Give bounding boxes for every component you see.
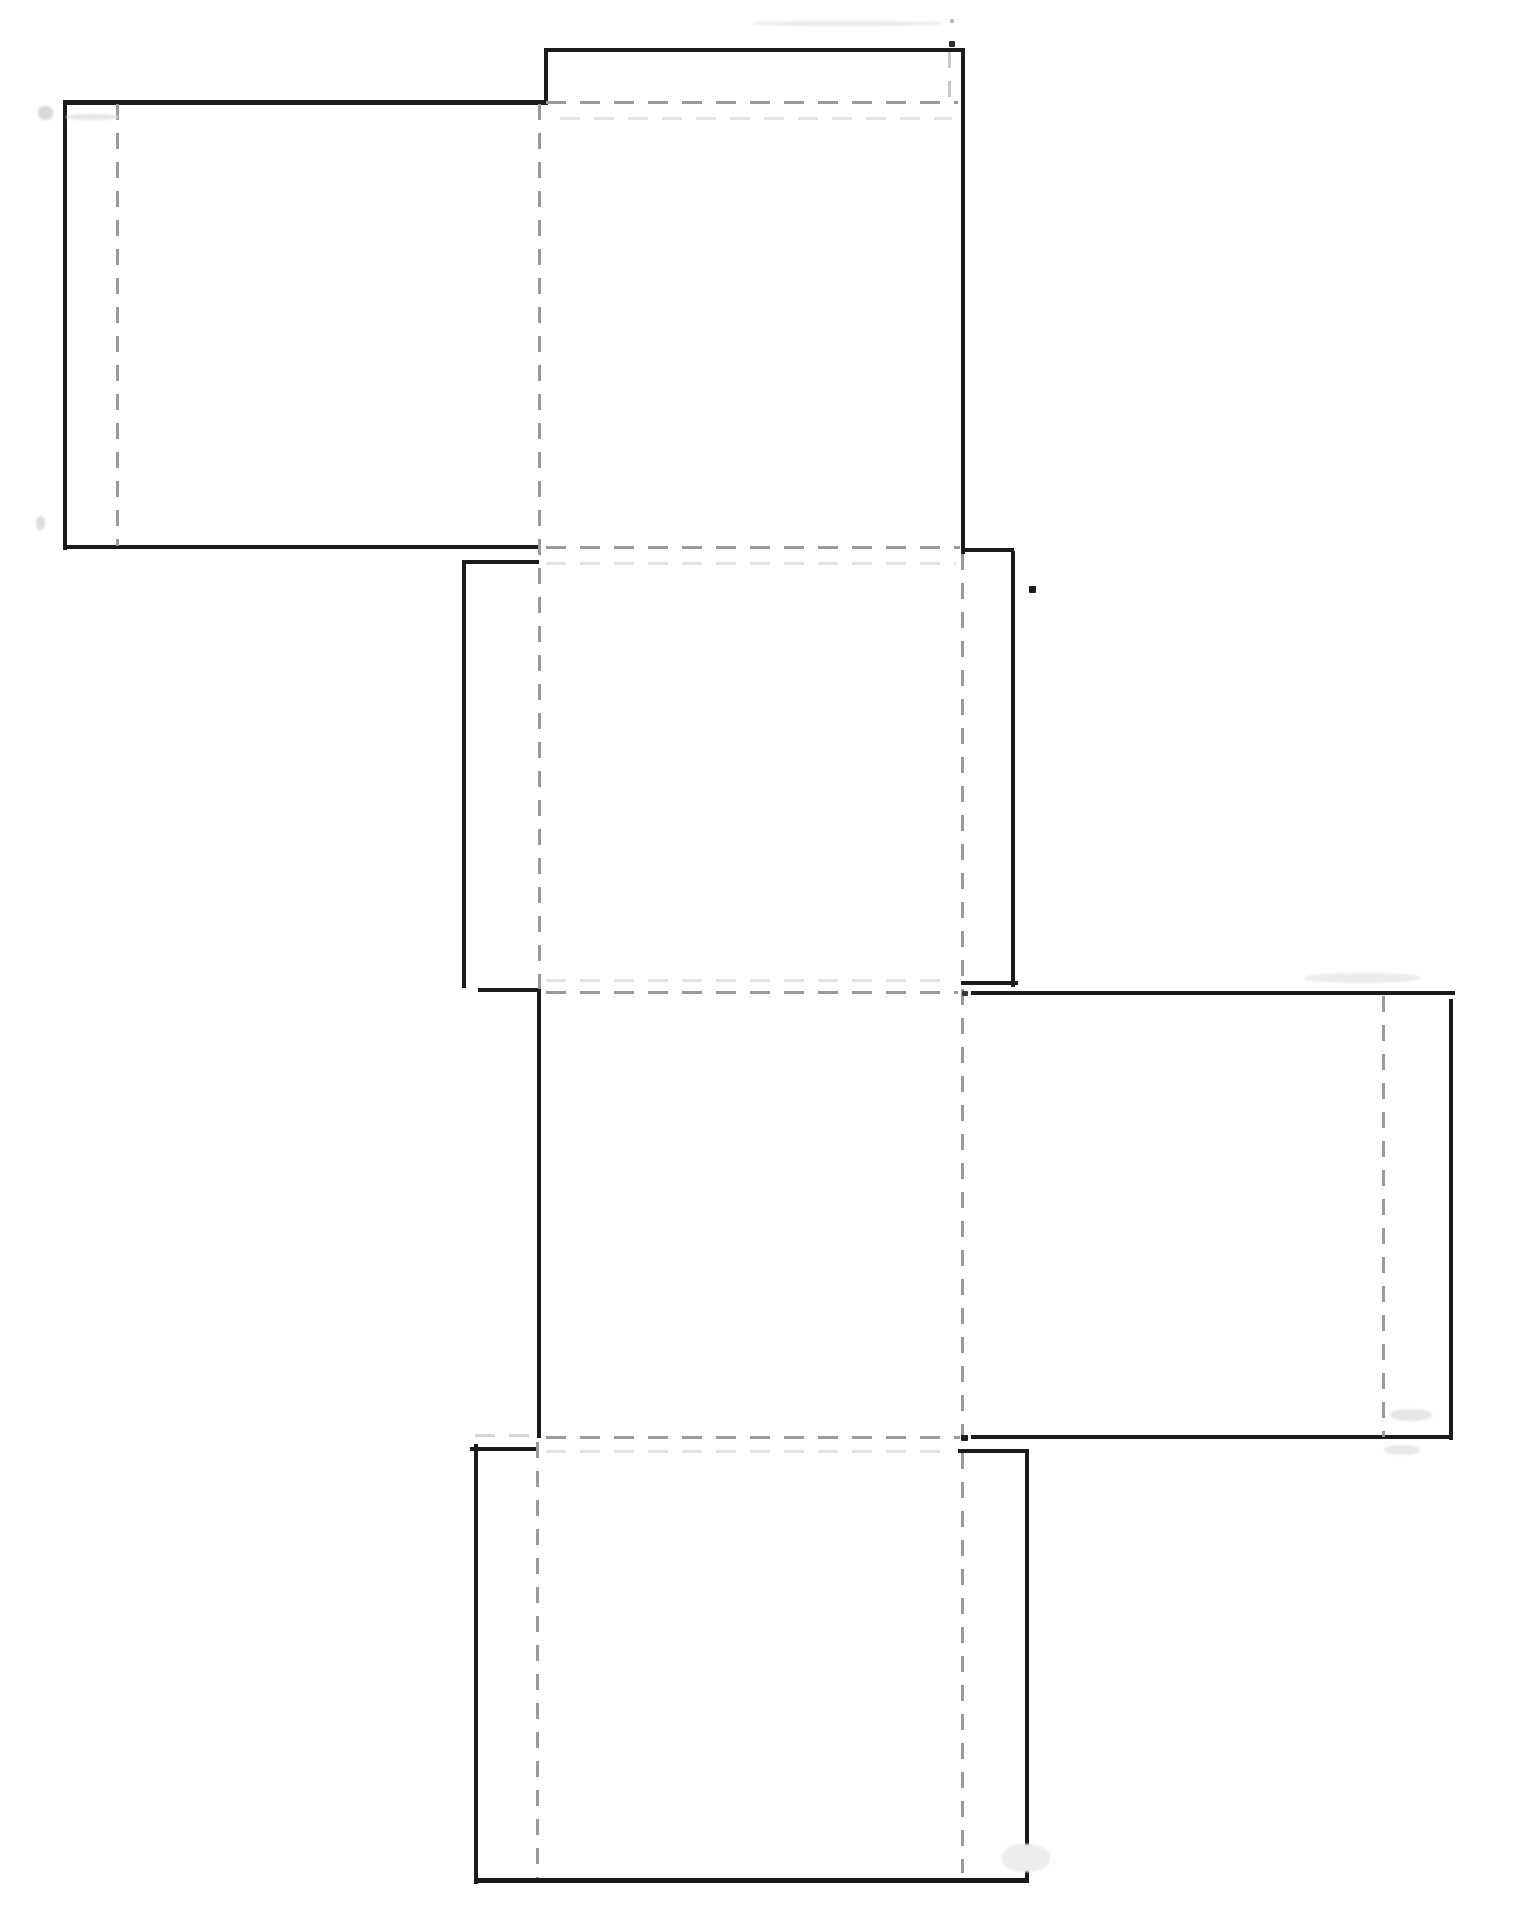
- column-right-fold: [961, 554, 964, 1873]
- middle-square-bottom-fold: [546, 991, 958, 994]
- middle-square-top-right-seg: [961, 548, 1014, 552]
- squiggle-left-middle: [36, 516, 45, 530]
- center-square-bottom-fold-faint: [475, 1434, 535, 1437]
- echo-fold-upper-middle: [546, 562, 956, 565]
- squiggle-left-top: [38, 106, 53, 120]
- smear-top-edge: [752, 21, 942, 26]
- junction-dot-middle-fold: [962, 991, 968, 996]
- echo-fold-bottom: [546, 1450, 952, 1453]
- junction-dot-bottom-fold: [961, 1435, 968, 1441]
- top-square-bottom-fold: [546, 546, 960, 549]
- bottom-square-right-edge: [1025, 1450, 1029, 1882]
- left-flap-left-edge: [63, 100, 67, 550]
- right-flap-bottom-edge: [971, 1435, 1452, 1439]
- center-square-left-edge: [537, 990, 541, 1438]
- left-flap-top-edge: [63, 100, 546, 105]
- stray-dot-right-middle: [1029, 586, 1036, 593]
- top-tab-left-edge: [544, 48, 548, 105]
- left-flap-tab-fold: [116, 104, 119, 546]
- smear-bottom-square: [1002, 1844, 1050, 1872]
- smear-right-flap-below: [1384, 1445, 1420, 1455]
- right-flap-right-edge: [1449, 999, 1453, 1440]
- right-flap-tab-fold: [1382, 996, 1385, 1437]
- column-left-fold-upper: [538, 104, 541, 989]
- right-flap-top-edge: [971, 991, 1455, 995]
- cube-net-lines-layer: [0, 0, 1524, 1915]
- middle-square-right-edge: [1011, 551, 1015, 987]
- middle-square-bottom-left-seg: [478, 988, 541, 992]
- center-square-bottom-fold: [546, 1436, 960, 1439]
- echo-fold-lower-middle: [546, 979, 952, 982]
- middle-square-top-left-seg: [462, 560, 539, 564]
- top-tab-top-edge: [544, 48, 965, 52]
- top-tab-inner-fold-faint: [948, 52, 951, 103]
- smear-right-flap-inner: [1390, 1409, 1432, 1421]
- column-left-fold-lower: [536, 1442, 539, 1878]
- cube-net-diagram: [0, 0, 1524, 1915]
- left-flap-bottom-edge: [63, 545, 541, 549]
- top-tab-fold: [546, 101, 958, 104]
- stray-dot-top-faint: [950, 19, 954, 23]
- top-square-right-edge: [961, 48, 965, 554]
- echo-fold-top: [560, 117, 952, 120]
- bottom-square-left-edge: [474, 1444, 478, 1884]
- smear-right-flap-top: [1305, 973, 1420, 983]
- middle-square-left-edge: [462, 560, 466, 988]
- stray-dot-top: [949, 41, 955, 47]
- smear-left-tab: [66, 114, 118, 120]
- bottom-square-bottom-edge: [474, 1878, 1029, 1883]
- bottom-square-top-right-seg: [958, 1449, 1029, 1453]
- bottom-square-top-left-seg: [470, 1447, 537, 1451]
- middle-square-bottom-right-seg: [961, 981, 1018, 985]
